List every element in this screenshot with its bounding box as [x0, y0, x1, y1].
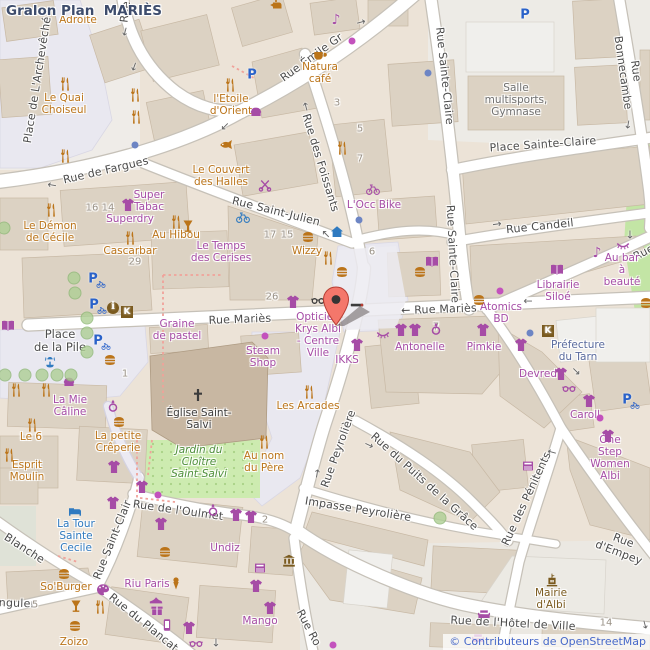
direction-arrow: →	[355, 15, 367, 30]
poi-label: Au nom du Père	[244, 451, 284, 475]
museum-icon	[282, 554, 296, 568]
parking-icon: P	[520, 9, 530, 22]
poi-label: Pimkie	[467, 342, 502, 354]
housenumber-label: 29	[129, 256, 142, 267]
shirt-icon	[350, 338, 364, 352]
tree-icon	[81, 327, 94, 340]
cinema-icon: K	[121, 306, 133, 318]
fountain-icon	[43, 356, 57, 370]
shirt-icon	[107, 460, 121, 474]
street-label: Rue Ro	[293, 608, 323, 649]
gift-icon	[150, 603, 164, 617]
direction-arrow: ↙	[220, 120, 229, 133]
housenumber-label: 26	[266, 291, 279, 302]
shirt-icon	[286, 295, 300, 309]
poi-label: Place de la Pile	[34, 328, 86, 354]
bicycle-icon	[631, 401, 640, 410]
fork-icon	[58, 77, 72, 91]
fork-icon	[25, 418, 39, 432]
music-note-icon: ♪	[332, 13, 341, 27]
street-label: Rue Bonnecambe	[611, 33, 646, 110]
poi-label: Église Saint- Salvi	[167, 408, 232, 432]
direction-arrow: ↓	[639, 618, 650, 633]
shirt-icon	[554, 367, 568, 381]
burger-icon	[57, 567, 71, 581]
housenumber-label: 5	[32, 599, 38, 610]
book-icon	[425, 255, 439, 269]
eye-icon	[376, 327, 390, 341]
poi-label: La petite Crêperie	[95, 431, 141, 455]
direction-arrow: ↓	[119, 25, 131, 40]
poi-label: Graine de pastel	[153, 319, 202, 343]
fork-icon	[169, 215, 183, 229]
icecream-icon	[169, 576, 183, 590]
poi-label: La Tour Sainte Cecile	[57, 519, 95, 555]
poi-label: Au Hibou	[152, 230, 200, 242]
burger-icon	[112, 415, 126, 429]
poi-label: Zoizo	[60, 637, 88, 649]
tree-icon	[0, 369, 12, 382]
bread-icon	[62, 375, 76, 389]
poi-label: Au bar à beauté	[604, 253, 641, 289]
housenumber-label: 7	[433, 321, 439, 332]
street-label: Blanche	[2, 531, 47, 566]
glasses-icon	[562, 381, 576, 395]
eye-icon	[616, 238, 630, 252]
street-label: Rue Sainte-Claire	[443, 205, 461, 304]
poi-label: Le Démon de Cécile	[23, 221, 76, 245]
dotpink-dot-icon	[597, 415, 604, 422]
bicycle-icon	[102, 342, 111, 351]
direction-arrow: ←	[523, 295, 532, 308]
poi-label: Salle multisports, Gymnase	[485, 83, 548, 119]
poi-label: So'Burger	[40, 582, 91, 594]
shirt-icon	[582, 394, 596, 408]
poi-label: Préfecture du Tarn	[551, 340, 605, 364]
burger-icon	[413, 265, 427, 279]
bicycle-icon	[97, 280, 106, 289]
poi-label: Wizzy	[292, 246, 322, 258]
parking-icon: P	[88, 273, 98, 286]
poi-label: l'Etoile d'Orient	[210, 94, 252, 118]
teapot-icon	[269, 0, 283, 11]
direction-arrow: ←	[46, 178, 57, 192]
fork-icon	[9, 383, 23, 397]
info-icon: i	[107, 302, 119, 314]
fork-icon	[129, 110, 143, 124]
burger-icon	[301, 230, 315, 244]
street-label: Rue Candeil	[506, 217, 575, 237]
street-label: Rue de l'Oulmet	[132, 498, 224, 523]
direction-arrow: ↓	[625, 229, 634, 242]
glasses-icon	[189, 636, 203, 650]
phone-icon	[160, 618, 174, 632]
dotblue-dot-icon	[356, 217, 363, 224]
fork-icon	[223, 78, 237, 92]
scissors-icon	[258, 178, 272, 192]
tree-icon	[81, 346, 94, 359]
shirt-icon	[229, 508, 243, 522]
poi-label: Le Couvert des Halles	[193, 165, 250, 189]
poi-label: Antonelle	[395, 342, 445, 354]
book-icon	[1, 319, 15, 333]
street-label: Rue Mariès	[208, 313, 271, 328]
shirt-icon	[244, 510, 258, 524]
fork-icon	[123, 231, 137, 245]
wine-icon	[181, 219, 195, 233]
fork-icon	[58, 149, 72, 163]
shirt-icon	[135, 480, 149, 494]
tree-icon	[68, 272, 81, 285]
shirt-icon	[182, 621, 196, 635]
shirt-icon	[249, 579, 263, 593]
street-label: Rue des Pénitents	[500, 450, 554, 548]
shirt-icon	[263, 601, 277, 615]
housenumber-label: 7	[357, 153, 363, 164]
poi-label: Devred	[519, 369, 557, 381]
fork-icon	[335, 141, 349, 155]
direction-arrow: ←	[546, 445, 558, 460]
poi-label: Mairie d'Albi	[535, 588, 567, 612]
shirt-icon	[514, 338, 528, 352]
burger-icon	[103, 353, 117, 367]
dotpink-dot-icon	[262, 333, 269, 340]
poi-label: Caroll	[570, 410, 600, 422]
palette-icon	[96, 583, 110, 597]
tree-icon	[65, 369, 78, 382]
poi-label: La Mie Câline	[53, 395, 87, 419]
poi-label: Cascarbar	[103, 246, 156, 258]
ring-icon	[429, 322, 443, 336]
parking-icon: P	[93, 335, 103, 348]
poi-label: Super Tabac	[134, 190, 165, 214]
music-note-icon: ♪	[593, 246, 602, 260]
burger-icon	[472, 293, 486, 307]
fish-icon	[219, 138, 233, 152]
street-label: Place de L'Archevêché	[22, 16, 54, 144]
dotblue-dot-icon	[425, 70, 432, 77]
house-icon	[330, 225, 344, 239]
direction-arrow: ↑	[311, 467, 322, 481]
burger-icon	[335, 265, 349, 279]
direction-arrow: ↘	[571, 365, 580, 378]
fork-icon	[128, 88, 142, 102]
tree-icon	[36, 369, 49, 382]
poi-label: Les Arcades	[276, 401, 339, 413]
street-label: Place Sainte-Claire	[489, 135, 597, 155]
fork-icon	[93, 600, 107, 614]
shirt-icon	[106, 496, 120, 510]
direction-arrow: ↓	[211, 637, 220, 650]
street-label: Rue des Foissants	[299, 113, 341, 214]
bed-icon	[68, 505, 82, 519]
street-label: Rue de Fargues	[62, 155, 150, 187]
poi-label: Superdry	[106, 214, 154, 226]
piano-icon	[253, 561, 267, 575]
parking-icon: P	[247, 69, 257, 82]
housenumber-label: 14	[102, 202, 115, 213]
tree-icon	[0, 222, 11, 235]
tree-icon	[81, 312, 94, 325]
piano-icon	[521, 459, 535, 473]
book-icon	[550, 263, 564, 277]
shirt-icon	[394, 323, 408, 337]
fork-icon	[44, 203, 58, 217]
parking-icon: P	[89, 299, 99, 312]
tree-icon	[19, 369, 32, 382]
dotblue-dot-icon	[527, 330, 534, 337]
poi-label: Le 6	[20, 432, 42, 444]
bicycle-icon	[98, 306, 107, 315]
housenumber-label: 16	[86, 202, 99, 213]
wine-icon	[69, 599, 83, 613]
osm-attribution-link[interactable]: © Contributeurs de OpenStreetMap	[443, 634, 650, 650]
fork-icon	[39, 383, 53, 397]
cinema-icon: K	[542, 325, 554, 337]
burger-icon	[158, 545, 172, 559]
housenumber-label: 6	[369, 246, 375, 257]
street-label: Rue du Puits de la Grâce	[368, 431, 480, 534]
tree-icon	[51, 369, 64, 382]
shoe-icon	[149, 592, 163, 606]
street-label: Rue de l'Hôtel de Ville	[450, 614, 576, 633]
housenumber-label: 17	[264, 229, 277, 240]
street-label: ← Rue Mariès	[401, 302, 477, 317]
poi-label: Natura café	[302, 62, 338, 86]
page-title: Gralon Plan MARIÈS	[6, 3, 162, 19]
street-label: Rue Émile Gr	[278, 31, 345, 85]
ring-icon	[206, 503, 220, 517]
bike-icon	[236, 210, 250, 224]
fork-icon	[2, 448, 16, 462]
housenumber-label: 5	[357, 123, 363, 134]
shirt-icon	[476, 323, 490, 337]
dotpink-dot-icon	[497, 288, 504, 295]
fork-icon	[302, 385, 316, 399]
poi-label: IKKS	[335, 355, 359, 367]
poi-label: Undiz	[210, 543, 239, 555]
fork-icon	[321, 251, 335, 265]
direction-arrow: ↖	[321, 228, 330, 241]
parking-icon: P	[622, 394, 632, 407]
housenumber-label: 3	[334, 97, 340, 108]
direction-arrow: ↓	[622, 118, 633, 132]
direction-arrow: ↑	[300, 100, 312, 115]
direction-arrow: →	[492, 217, 503, 231]
street-label: Rue Peyrolière	[319, 408, 359, 489]
dotblue-dot-icon	[132, 142, 139, 149]
housenumber-label: 15	[281, 229, 294, 240]
bread-icon	[249, 105, 263, 119]
housenumber-label: 1	[122, 368, 128, 379]
street-label: Rue Saint-Julien	[231, 195, 322, 229]
street-label: Rue	[632, 243, 650, 264]
poi-label: Atomics BD	[480, 302, 522, 326]
sofa-icon	[477, 607, 491, 621]
map-marker-pin[interactable]	[322, 286, 350, 326]
direction-arrow: →	[362, 437, 376, 453]
fork-icon	[257, 435, 271, 449]
cross-icon	[191, 388, 205, 402]
dotpink-dot-icon	[330, 642, 337, 649]
housenumber-label: 2	[262, 514, 268, 525]
direction-arrow: ↓	[127, 59, 140, 74]
street-label: Rue Saint-Clair	[91, 498, 134, 581]
shirt-icon	[121, 198, 135, 212]
map-canvas[interactable]: RuePlace de L'ArchevêchéRue de FarguesRu…	[0, 0, 650, 650]
poi-label: Esprit Moulin	[10, 460, 45, 484]
burger-icon	[68, 619, 82, 633]
street-label: Rue du Plancat	[106, 591, 180, 650]
poi-label: Riu Paris	[124, 579, 169, 591]
dotpink-dot-icon	[349, 38, 356, 45]
bike-icon	[366, 182, 380, 196]
poi-label: One Step Women Albi	[590, 435, 630, 483]
poi-label: Le Temps des Cerises	[191, 241, 251, 265]
poi-label: Librairie Siloé	[537, 280, 580, 304]
housenumber-label: 14	[600, 617, 613, 628]
shirt-icon	[601, 429, 615, 443]
tree-icon	[69, 287, 82, 300]
poi-label: Mango	[242, 616, 277, 628]
burger-icon	[639, 296, 650, 310]
tree-icon	[434, 512, 447, 525]
street-label: nguler	[0, 597, 35, 611]
poi-label: L'Occ Bike	[347, 200, 401, 212]
ring-icon	[106, 399, 120, 413]
street-label: Impasse Peyrolière	[304, 495, 412, 524]
cup-icon	[313, 48, 327, 62]
street-label: Rue d'Empey	[593, 526, 648, 567]
dotpink-dot-icon	[155, 492, 162, 499]
poi-label: Jardin du Cloître Saint-Salvi	[171, 445, 227, 481]
street-label: Rue Sainte-Claire	[433, 27, 456, 126]
poi-label: Steam Shop	[246, 346, 280, 370]
shirt-icon	[408, 323, 422, 337]
poi-label: Le Quai Choiseul	[42, 93, 87, 117]
townhall-icon	[545, 573, 559, 587]
shirt-icon	[154, 517, 168, 531]
